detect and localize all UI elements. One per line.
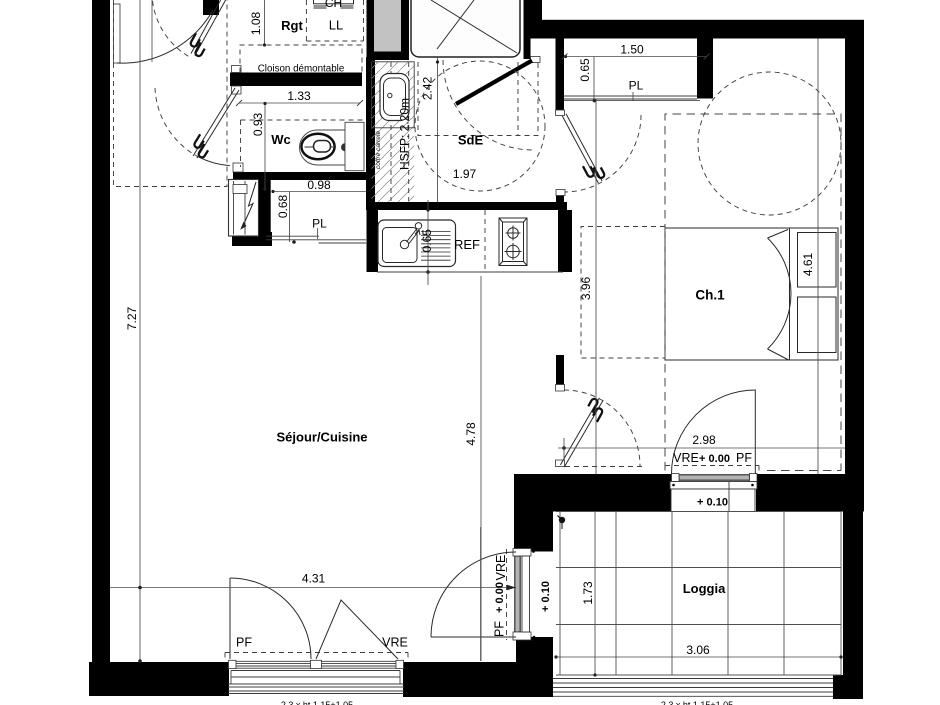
svg-text:SdE: SdE — [458, 133, 484, 148]
svg-text:1.33: 1.33 — [287, 89, 311, 103]
svg-text:0.65: 0.65 — [420, 229, 434, 253]
svg-text:PF: PF — [493, 621, 507, 637]
svg-text:VRE: VRE — [382, 636, 408, 650]
svg-text:0.93: 0.93 — [251, 112, 265, 136]
svg-text:Séjour/Cuisine: Séjour/Cuisine — [276, 430, 367, 445]
svg-text:4.31: 4.31 — [302, 572, 326, 586]
svg-text:4.61: 4.61 — [801, 252, 815, 276]
svg-text:3.96: 3.96 — [579, 276, 593, 300]
svg-text:0.65: 0.65 — [578, 58, 592, 82]
svg-text:coffre carrelé: coffre carrelé — [375, 131, 382, 169]
svg-text:4.78: 4.78 — [464, 422, 478, 446]
svg-text:HSFP: 2.20m: HSFP: 2.20m — [398, 98, 412, 170]
svg-text:0.68: 0.68 — [276, 194, 290, 218]
svg-text:2.3 x ht 1.15+1.05: 2.3 x ht 1.15+1.05 — [281, 700, 353, 705]
svg-text:+ 0.00: + 0.00 — [494, 582, 506, 613]
svg-text:PL: PL — [312, 217, 327, 231]
svg-text:2.3 x ht 1.15+1.05: 2.3 x ht 1.15+1.05 — [661, 700, 733, 705]
svg-text:PF: PF — [236, 636, 252, 650]
svg-text:Cloison démontable: Cloison démontable — [258, 64, 345, 75]
svg-text:2.98: 2.98 — [692, 433, 716, 447]
svg-text:1.08: 1.08 — [249, 11, 263, 35]
svg-text:1.50: 1.50 — [620, 43, 644, 57]
svg-text:VRE: VRE — [673, 451, 699, 465]
svg-text:+ 0.10: + 0.10 — [540, 581, 552, 612]
svg-text:Loggia: Loggia — [683, 581, 726, 596]
svg-text:3.06: 3.06 — [686, 643, 710, 657]
svg-text:2.42: 2.42 — [421, 76, 435, 100]
svg-text:+ 0.00: + 0.00 — [699, 453, 730, 465]
svg-text:1.73: 1.73 — [581, 581, 595, 605]
svg-text:+ 0.10: + 0.10 — [697, 497, 728, 509]
svg-text:CH: CH — [325, 0, 342, 10]
svg-text:PF: PF — [736, 451, 752, 465]
svg-text:0.98: 0.98 — [307, 178, 331, 192]
svg-text:Wc: Wc — [271, 132, 291, 147]
svg-text:LL: LL — [329, 18, 343, 33]
svg-text:Rgt: Rgt — [281, 18, 303, 33]
svg-text:7.27: 7.27 — [125, 306, 139, 330]
svg-text:REF: REF — [454, 237, 480, 252]
svg-text:1.97: 1.97 — [453, 167, 477, 181]
svg-text:VRE: VRE — [494, 555, 508, 581]
svg-text:PL: PL — [629, 79, 644, 93]
svg-text:Ch.1: Ch.1 — [695, 288, 725, 303]
